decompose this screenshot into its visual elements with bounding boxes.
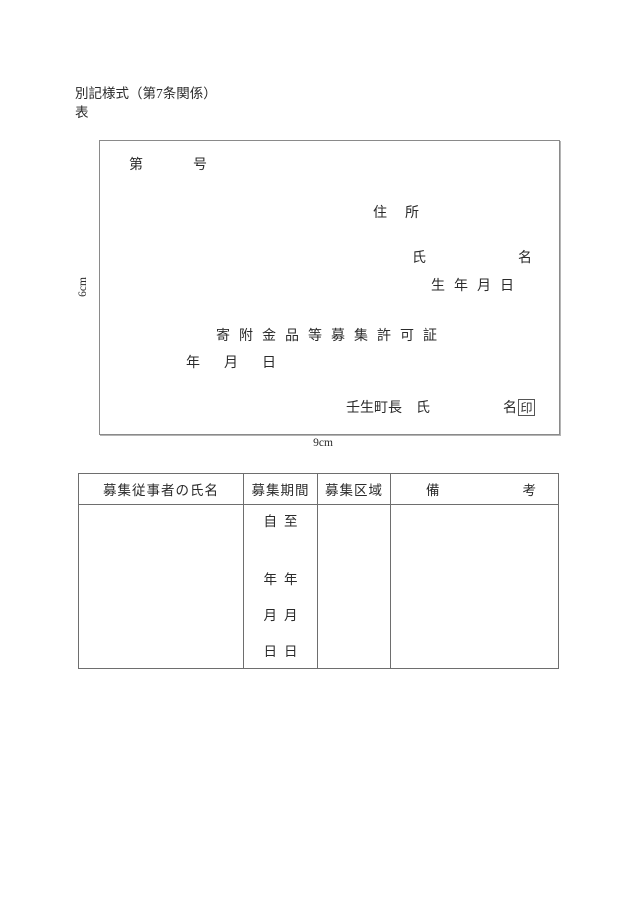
- issuer-name-suffix: 名: [503, 397, 517, 417]
- header-remarks: 備 考: [391, 474, 559, 505]
- recruitment-area-cell: [318, 505, 391, 669]
- period-cell: 自 年 月 日 至 年 月 日: [244, 505, 318, 669]
- period-from-prefix: 自: [264, 514, 278, 530]
- period-from-month: 月: [264, 608, 278, 624]
- issue-date-label: 年月日: [186, 352, 300, 372]
- period-columns: 自 年 月 日 至 年 月 日: [244, 505, 317, 660]
- issuer-label: 壬生町長 氏: [346, 397, 430, 417]
- certificate-number-prefix: 第: [129, 158, 143, 173]
- card-height-dimension: 6cm: [77, 271, 97, 303]
- certificate-title: 寄附金品等募集許可証: [216, 325, 446, 345]
- recruiters-table: 募集従事者の氏名 募集期間 募集区域 備 考 自 年: [78, 473, 559, 669]
- form-style-note: 別記様式（第7条関係）: [75, 82, 217, 102]
- recruiter-name-cell: [79, 505, 244, 669]
- table-body-row: 自 年 月 日 至 年 月 日: [79, 505, 559, 669]
- name-label-left: 氏: [412, 247, 426, 267]
- header-remarks-right: 考: [523, 479, 538, 499]
- header-remarks-left: 備: [426, 479, 441, 499]
- header-recruitment-area: 募集区域: [318, 474, 391, 505]
- sheet-side-label: 表: [75, 101, 89, 121]
- document-page: 別記様式（第7条関係） 表 第号 住所 氏 名 生年月日 寄附金品等募集許可証 …: [0, 0, 630, 915]
- header-recruiter-name: 募集従事者の氏名: [79, 474, 244, 505]
- name-label-row: 氏 名: [412, 247, 532, 267]
- issuer-seal-group: 名 印: [503, 397, 535, 417]
- period-to-year: 年: [284, 572, 298, 588]
- certificate-number-suffix: 号: [193, 158, 207, 173]
- seal-mark: 印: [518, 399, 535, 416]
- period-from-column: 自 年 月 日: [264, 514, 278, 660]
- header-remarks-inner: 備 考: [391, 479, 558, 499]
- birthdate-label: 生年月日: [431, 275, 523, 295]
- name-label-right: 名: [518, 247, 532, 267]
- issuer-line: 壬生町長 氏 名 印: [346, 397, 535, 417]
- table-header-row: 募集従事者の氏名 募集期間 募集区域 備 考: [79, 474, 559, 505]
- permit-certificate-card: 第号 住所 氏 名 生年月日 寄附金品等募集許可証 年月日 壬生町長 氏 名 印: [99, 140, 560, 435]
- remarks-cell: [391, 505, 559, 669]
- period-from-year: 年: [264, 572, 278, 588]
- address-label: 住所: [373, 202, 437, 222]
- certificate-number-line: 第号: [129, 154, 207, 174]
- period-to-prefix: 至: [284, 514, 298, 530]
- period-from-day: 日: [264, 644, 278, 660]
- period-to-day: 日: [284, 644, 298, 660]
- period-to-month: 月: [284, 608, 298, 624]
- header-recruitment-period: 募集期間: [244, 474, 318, 505]
- period-to-column: 至 年 月 日: [284, 514, 298, 660]
- card-width-dimension: 9cm: [99, 437, 547, 449]
